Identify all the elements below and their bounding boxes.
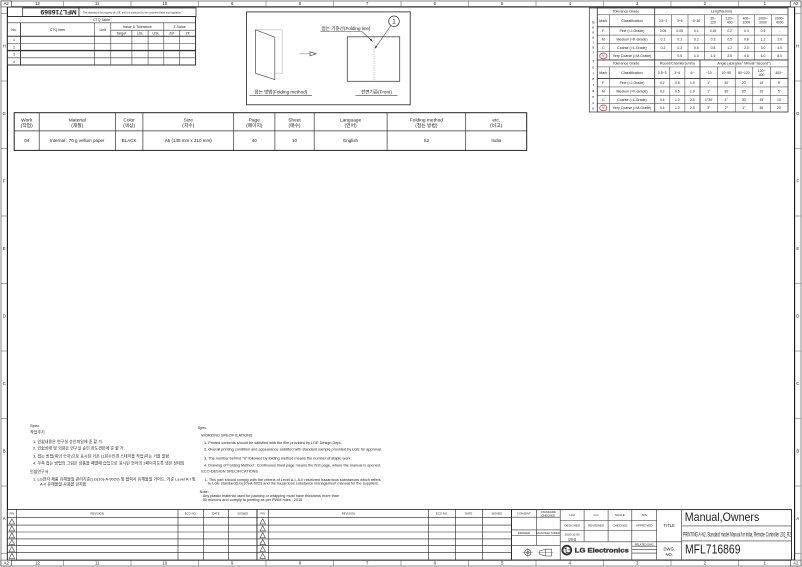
svg-text:SIGNED: SIGNED (492, 512, 503, 516)
svg-text:This drawing is the property o: This drawing is the property of LGE, and… (83, 11, 182, 14)
svg-text:M: M (602, 89, 605, 93)
svg-text:400: 400 (727, 21, 733, 25)
svg-text:2.5: 2.5 (727, 54, 732, 58)
svg-text:1.0: 1.0 (690, 81, 695, 85)
svg-text:MANUFACTURER: MANUFACTURER (537, 531, 560, 535)
svg-text:1.0: 1.0 (675, 106, 680, 110)
svg-text:0.4: 0.4 (660, 106, 665, 110)
svg-text:B: B (796, 449, 799, 454)
svg-text:N/S: N/S (642, 513, 647, 517)
svg-text:0.1: 0.1 (661, 38, 666, 42)
svg-text:G: G (592, 21, 595, 25)
svg-text:P/N: P/N (10, 512, 15, 516)
svg-text:DATE: DATE (212, 512, 219, 516)
svg-text:30': 30' (742, 98, 747, 102)
svg-text:etc.: etc. (492, 117, 500, 123)
svg-text:1: 1 (392, 19, 396, 26)
svg-text:8.0: 8.0 (777, 54, 782, 58)
svg-text:1.0: 1.0 (690, 89, 695, 93)
svg-text:(매수): (매수) (288, 122, 300, 129)
svg-text:접는 방법(Folding method): 접는 방법(Folding method) (254, 89, 307, 95)
svg-text:F: F (602, 29, 604, 33)
svg-text:D: D (796, 314, 799, 319)
svg-text:Size: Size (184, 117, 194, 123)
svg-text:A2: A2 (793, 1, 799, 6)
svg-text:CHECKED: CHECKED (613, 523, 629, 527)
svg-text:2000: 2000 (759, 21, 767, 25)
svg-text:0.4: 0.4 (660, 98, 665, 102)
svg-text:20': 20' (742, 81, 747, 85)
svg-text:0.8: 0.8 (744, 38, 749, 42)
svg-text:0.3: 0.3 (744, 29, 749, 33)
svg-text:1: 1 (13, 38, 15, 42)
svg-text:1.5: 1.5 (711, 54, 716, 58)
svg-text:0.1: 0.1 (677, 38, 682, 42)
svg-text:4.0: 4.0 (777, 46, 782, 50)
svg-text:Unit: Unit (570, 513, 576, 517)
svg-text:2.0: 2.0 (690, 106, 695, 110)
svg-text:20': 20' (742, 89, 747, 93)
svg-text:0.1: 0.1 (694, 29, 699, 33)
svg-text:SIGNED: SIGNED (237, 512, 248, 516)
svg-text:M: M (602, 38, 605, 42)
svg-text:CTQ Item: CTQ Item (50, 28, 66, 32)
svg-text:ECO NO.: ECO NO. (185, 512, 197, 516)
svg-text:0.5~3: 0.5~3 (659, 19, 668, 23)
svg-text:(작업): (작업) (21, 122, 33, 129)
svg-text:e: e (592, 107, 594, 111)
svg-text:A2: A2 (4, 1, 10, 6)
svg-text:C: C (796, 381, 799, 386)
svg-text:0.2: 0.2 (727, 29, 732, 33)
svg-text:DRAWER: DRAWER (518, 531, 530, 535)
svg-text:(페이지): (페이지) (246, 122, 263, 129)
svg-text:Coarse (=L-Grade): Coarse (=L-Grade) (617, 46, 646, 50)
svg-text:0.5: 0.5 (761, 29, 766, 33)
svg-text:A5 (148 mm x 210 mm): A5 (148 mm x 210 mm) (165, 138, 213, 143)
svg-text:1.0: 1.0 (694, 54, 699, 58)
svg-text:F: F (796, 179, 799, 184)
svg-text:Sheet: Sheet (288, 117, 301, 123)
svg-text:Round/Chamfer(±mm): Round/Chamfer(±mm) (660, 62, 695, 66)
svg-text:0.5: 0.5 (677, 54, 682, 58)
svg-text:Work: Work (21, 117, 33, 123)
svg-text:0.2: 0.2 (694, 38, 699, 42)
svg-text:CTQ Table: CTQ Table (93, 18, 110, 22)
svg-text:Mark: Mark (599, 19, 607, 23)
svg-text:a: a (592, 89, 594, 93)
svg-text:Mark: Mark (599, 71, 607, 75)
svg-text:e: e (592, 36, 594, 40)
svg-text:F: F (3, 179, 6, 184)
svg-text:4000: 4000 (776, 21, 784, 25)
svg-text:인쉸연구서: 인쉸연구서 (30, 468, 49, 474)
svg-text:Tolerance Grade: Tolerance Grade (613, 62, 640, 66)
svg-text:30': 30' (724, 81, 729, 85)
svg-text:DATE: DATE (465, 512, 472, 516)
svg-text:REVIEWED: REVIEWED (588, 523, 605, 527)
svg-text:4. Drawing of Folding Method :: 4. Drawing of Folding Method : Continuou… (204, 463, 381, 467)
svg-text:MFL716869: MFL716869 (40, 8, 76, 15)
svg-text:Spec.: Spec. (30, 423, 40, 428)
svg-text:0.8: 0.8 (711, 46, 716, 50)
svg-text:0.05: 0.05 (660, 29, 667, 33)
svg-text:(재질): (재질) (71, 122, 83, 129)
svg-text:접는 기준선(Folding line): 접는 기준선(Folding line) (322, 25, 371, 32)
svg-text:2.0: 2.0 (690, 98, 695, 102)
svg-text:400~: 400~ (775, 71, 783, 75)
svg-text:120: 120 (710, 21, 716, 25)
svg-text:CHECKED: CHECKED (541, 513, 555, 517)
svg-text:Folding method: Folding method (410, 117, 443, 123)
svg-text:LG Electronics: LG Electronics (575, 548, 629, 555)
svg-text:작업주기: 작업주기 (30, 429, 45, 435)
svg-text:2: 2 (13, 45, 15, 49)
svg-text:TITLE: TITLE (663, 523, 675, 528)
svg-text:H: H (3, 44, 6, 49)
svg-text:(비고): (비고) (490, 122, 502, 129)
svg-text:c: c (592, 101, 594, 105)
svg-text:1000: 1000 (743, 21, 751, 25)
svg-text:2. 인쉸상태 및 외관은 연구실 승인 한도견본에 준 할: 2. 인쉸상태 및 외관은 연구실 승인 한도견본에 준 할 거. (33, 444, 125, 450)
svg-text:5': 5' (778, 89, 781, 93)
svg-text:0.5: 0.5 (675, 89, 680, 93)
svg-text:~10: ~10 (706, 71, 712, 75)
svg-text:2020-11-06: 2020-11-06 (565, 533, 580, 537)
svg-text:0.3: 0.3 (711, 38, 716, 42)
svg-text:ECO NO.: ECO NO. (436, 512, 448, 516)
svg-text:(언어): (언어) (345, 122, 357, 129)
svg-text:1.2: 1.2 (727, 46, 732, 50)
svg-text:USL: USL (153, 32, 160, 36)
svg-text:Z-Value: Z-Value (174, 25, 186, 29)
svg-text:ECO-DESIGN SPECIFICATIONS: ECO-DESIGN SPECIFICATIONS (201, 470, 258, 474)
svg-text:10: 10 (292, 138, 298, 143)
svg-text:e: e (592, 26, 594, 30)
svg-text:Fine (=J-Grade): Fine (=J-Grade) (620, 81, 645, 85)
svg-text:11: 11 (95, 561, 100, 566)
svg-text:0.2: 0.2 (660, 89, 665, 93)
svg-text:India: India (491, 138, 501, 143)
svg-text:Internal : 70 g vellum paper: Internal : 70 g vellum paper (50, 138, 105, 143)
svg-text:Spec.: Spec. (198, 426, 208, 430)
svg-text:e: e (592, 77, 594, 81)
svg-text:PRINTING A-N2, Standard model: PRINTING A-N2, Standard model Manual for… (683, 532, 791, 538)
svg-text:Color: Color (123, 117, 135, 123)
svg-text:A: A (796, 516, 799, 521)
svg-text:0.2: 0.2 (660, 81, 665, 85)
svg-text:a: a (592, 46, 594, 50)
svg-text:Language: Language (340, 117, 362, 123)
svg-text:-: - (662, 54, 663, 58)
svg-text:2.0: 2.0 (777, 38, 782, 42)
svg-text:REVISION: REVISION (342, 512, 355, 516)
svg-text:3.0: 3.0 (761, 46, 766, 50)
svg-text:Value & Tolerance: Value & Tolerance (123, 25, 152, 29)
svg-text:Angle (±Degree° Minute' Second: Angle (±Degree° Minute' Second") (717, 62, 770, 66)
svg-text:3. 접는 방법(위의 숫자)으로 표시된 거은 (1회수인: 3. 접는 방법(위의 숫자)으로 표시된 거은 (1회수인경 스테이플 작업)… (33, 452, 169, 458)
svg-text:1. Printed contents should be: 1. Printed contents should be satisfied … (204, 441, 342, 445)
svg-text:30': 30' (724, 89, 729, 93)
svg-text:(치수): (치수) (182, 122, 194, 129)
svg-text:REVISION: REVISION (91, 512, 104, 516)
svg-text:BLACK: BLACK (122, 138, 137, 143)
svg-text:0.5: 0.5 (727, 38, 732, 42)
svg-text:RELATED DWG: RELATED DWG (635, 542, 654, 546)
svg-text:Zst: Zst (169, 32, 174, 36)
svg-text:Classification: Classification (621, 71, 642, 75)
svg-text:3. The number behind "S" follo: 3. The number behind "S" followed by fol… (204, 456, 352, 460)
svg-text:LSL: LSL (137, 32, 143, 36)
svg-text:A: A (3, 516, 6, 521)
svg-text:E: E (3, 246, 6, 251)
svg-text:Target: Target (116, 32, 126, 36)
svg-text:Length(±mm): Length(±mm) (711, 10, 732, 14)
svg-text:6.0: 6.0 (761, 54, 766, 58)
svg-text:1.2: 1.2 (761, 38, 766, 42)
svg-text:n: n (592, 31, 594, 35)
svg-text:30': 30' (759, 106, 764, 110)
svg-text:E: E (796, 246, 799, 251)
svg-text:40: 40 (252, 138, 258, 143)
svg-text:Material: Material (69, 117, 86, 123)
svg-text:6~: 6~ (690, 71, 694, 75)
svg-text:Fine (=J-Grade): Fine (=J-Grade) (620, 29, 645, 33)
svg-text:D: D (3, 314, 6, 319)
svg-text:50 microns and comply to print: 50 microns and comply to printing as per… (203, 498, 303, 502)
svg-text:F: F (602, 81, 604, 85)
svg-text:12: 12 (35, 561, 40, 566)
svg-text:MFL716869: MFL716869 (685, 542, 741, 557)
svg-text:Medium (=K-Grade): Medium (=K-Grade) (616, 38, 647, 42)
svg-text:20': 20' (777, 106, 782, 110)
svg-text:장민정: 장민정 (568, 536, 577, 541)
svg-text:1°30': 1°30' (705, 98, 713, 102)
svg-text:2.0: 2.0 (744, 46, 749, 50)
svg-text:400: 400 (759, 73, 765, 77)
svg-text:5': 5' (778, 81, 781, 85)
svg-text:Tolerance Grade: Tolerance Grade (613, 10, 640, 14)
svg-text:1. 인쉸내용은 연구실 승인파일에 준 할 거.: 1. 인쉸내용은 연구실 승인파일에 준 할 거. (33, 438, 103, 444)
svg-text:2. Overall printing condition: 2. Overall printing condition and appear… (204, 447, 382, 451)
svg-text:Zlt: Zlt (186, 32, 190, 36)
svg-text:전면기준(Front): 전면기준(Front) (361, 89, 392, 96)
svg-text:50~120: 50~120 (738, 71, 750, 75)
svg-text:Classification: Classification (621, 19, 642, 23)
svg-text:0.2: 0.2 (661, 46, 666, 50)
svg-text:A-II 유해물질 사용을 금지함.: A-II 유해물질 사용을 금지함. (40, 480, 87, 486)
svg-text:Manual,Owners: Manual,Owners (685, 510, 760, 524)
svg-text:6~30: 6~30 (693, 19, 701, 23)
svg-text:3~6: 3~6 (674, 71, 680, 75)
svg-text:DESIGNED: DESIGNED (564, 523, 581, 527)
svg-text:o: o (592, 65, 594, 69)
svg-text:A2: A2 (4, 561, 10, 566)
svg-text:(접는 방법): (접는 방법) (415, 122, 438, 129)
svg-text:0.5: 0.5 (694, 46, 699, 50)
svg-text:10~50: 10~50 (722, 71, 732, 75)
svg-text:15': 15' (759, 98, 764, 102)
svg-text:4: 4 (13, 60, 15, 64)
svg-text:0.05: 0.05 (676, 29, 683, 33)
svg-text:10': 10' (759, 81, 764, 85)
svg-text:n: n (592, 95, 594, 99)
svg-text:mm: mm (594, 513, 599, 517)
svg-text:3~6: 3~6 (677, 19, 683, 23)
svg-text:10: 10 (162, 1, 167, 6)
svg-text:(색상): (색상) (123, 122, 135, 129)
svg-text:11: 11 (95, 1, 100, 6)
svg-text:4. 우측 접는 방법의 그림은 상품을 폐열때 습입으로: 4. 우측 접는 방법의 그림은 상품을 폐열때 습입으로 표시된 언어의 1페… (33, 459, 185, 465)
svg-text:0.5: 0.5 (675, 81, 680, 85)
svg-text:12: 12 (35, 1, 40, 6)
svg-text:1.0: 1.0 (675, 98, 680, 102)
svg-text:0.15: 0.15 (710, 29, 717, 33)
svg-text:WORKING SPECIFICATIONS: WORKING SPECIFICATIONS (201, 433, 252, 437)
svg-text:NO.: NO. (665, 552, 672, 557)
svg-text:Very Coarse (=M-Grade): Very Coarse (=M-Grade) (613, 54, 651, 58)
svg-text:0.5~3: 0.5~3 (658, 71, 667, 75)
svg-text:-: - (779, 29, 780, 33)
svg-text:Coarse (=L-Grade): Coarse (=L-Grade) (617, 98, 646, 102)
svg-text:English: English (343, 138, 358, 143)
svg-text:P/N: P/N (260, 512, 265, 516)
svg-text:10': 10' (777, 98, 782, 102)
svg-text:Unit: Unit (99, 28, 105, 32)
svg-text:DWG.: DWG. (663, 546, 674, 551)
svg-text:No.: No. (11, 28, 17, 32)
svg-text:C: C (3, 381, 6, 386)
svg-text:S2: S2 (424, 138, 430, 143)
svg-text:4.0: 4.0 (744, 54, 749, 58)
svg-text:H: H (796, 44, 799, 49)
svg-text:10: 10 (162, 561, 167, 566)
svg-text:10': 10' (759, 89, 764, 93)
svg-text:04: 04 (24, 138, 30, 143)
svg-text:Very Coarse (=M-Grade): Very Coarse (=M-Grade) (613, 106, 651, 110)
svg-text:APPROVED: APPROVED (636, 523, 654, 527)
svg-text:CONSENT: CONSENT (517, 512, 531, 516)
svg-text:3: 3 (13, 53, 15, 57)
svg-text:to LGE standard(LG(10)-A-9023: to LGE standard(LG(10)-A-9023 and the ha… (208, 481, 379, 485)
svg-text:Page: Page (249, 117, 261, 123)
svg-text:Medium (=K-Grade): Medium (=K-Grade) (616, 89, 647, 93)
svg-text:A2: A2 (793, 561, 799, 566)
svg-text:SCALE: SCALE (615, 513, 625, 517)
svg-text:B: B (3, 449, 6, 454)
svg-text:0.3: 0.3 (677, 46, 682, 50)
